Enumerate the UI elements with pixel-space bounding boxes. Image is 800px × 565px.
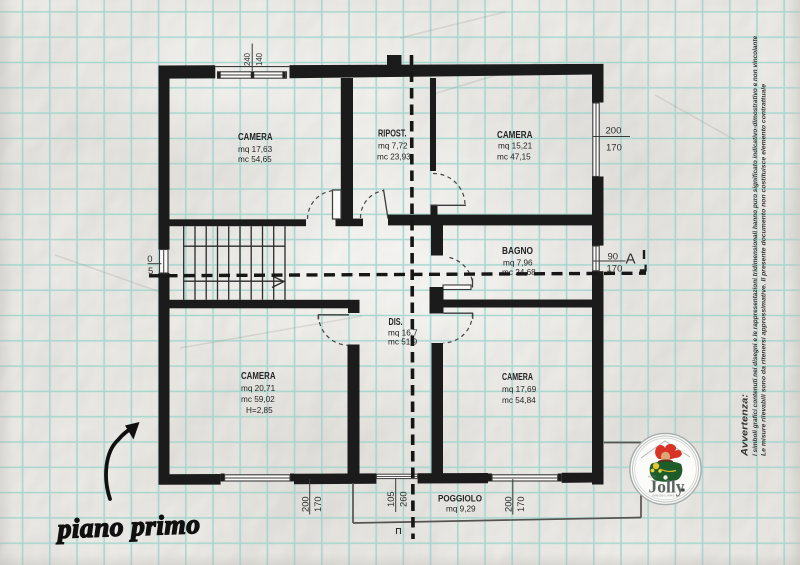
- svg-text:200: 200: [502, 496, 513, 512]
- svg-text:140: 140: [255, 52, 264, 66]
- svg-text:170: 170: [515, 496, 526, 512]
- svg-text:260: 260: [398, 491, 409, 507]
- svg-text:mc 23,93: mc 23,93: [377, 153, 411, 162]
- svg-text:170: 170: [312, 496, 323, 512]
- svg-text:mq 17,63: mq 17,63: [238, 145, 273, 154]
- svg-text:105: 105: [385, 491, 396, 507]
- svg-text:0: 0: [147, 254, 152, 265]
- svg-text:CAMERA: CAMERA: [238, 132, 273, 143]
- svg-text:RIPOST.: RIPOST.: [378, 129, 407, 140]
- svg-text:mq 20,71: mq 20,71: [241, 384, 276, 393]
- svg-text:mc 59,02: mc 59,02: [241, 395, 275, 404]
- svg-text:240: 240: [243, 52, 252, 66]
- svg-text:CAMERA: CAMERA: [502, 372, 533, 383]
- svg-text:mc 54,65: mc 54,65: [238, 155, 272, 164]
- svg-text:mq 17,69: mq 17,69: [502, 385, 537, 394]
- svg-text:A: A: [626, 251, 636, 268]
- svg-text:piano primo: piano primo: [55, 508, 201, 544]
- svg-text:mq 15,21: mq 15,21: [498, 142, 533, 151]
- svg-text:CAMERA: CAMERA: [241, 371, 276, 382]
- svg-text:200: 200: [606, 126, 622, 137]
- svg-text:Avvertenza:: Avvertenza:: [740, 394, 750, 457]
- svg-text:CAMERA: CAMERA: [497, 130, 533, 141]
- svg-text:POGGIOLO: POGGIOLO: [438, 494, 482, 504]
- svg-text:IMMOBILIARE: IMMOBILIARE: [652, 494, 675, 498]
- svg-text:DIS.: DIS.: [389, 317, 403, 328]
- svg-text:200: 200: [300, 496, 311, 512]
- svg-text:BAGNO: BAGNO: [502, 246, 533, 257]
- svg-text:mc 54,84: mc 54,84: [502, 396, 536, 405]
- svg-text:mq 9,29: mq 9,29: [446, 505, 476, 514]
- svg-text:170: 170: [606, 143, 622, 154]
- svg-text:Le misure rilevabili sono da r: Le misure rilevabili sono da ritenersi a…: [761, 84, 768, 456]
- svg-text:H=2,85: H=2,85: [246, 406, 273, 415]
- svg-text:mq 7,72: mq 7,72: [378, 142, 408, 151]
- svg-text:mq 7,96: mq 7,96: [503, 259, 533, 268]
- svg-text:mc 47,15: mc 47,15: [497, 153, 531, 162]
- svg-text:I simboli grafici contenuti ne: I simboli grafici contenuti nei disegni …: [752, 36, 759, 456]
